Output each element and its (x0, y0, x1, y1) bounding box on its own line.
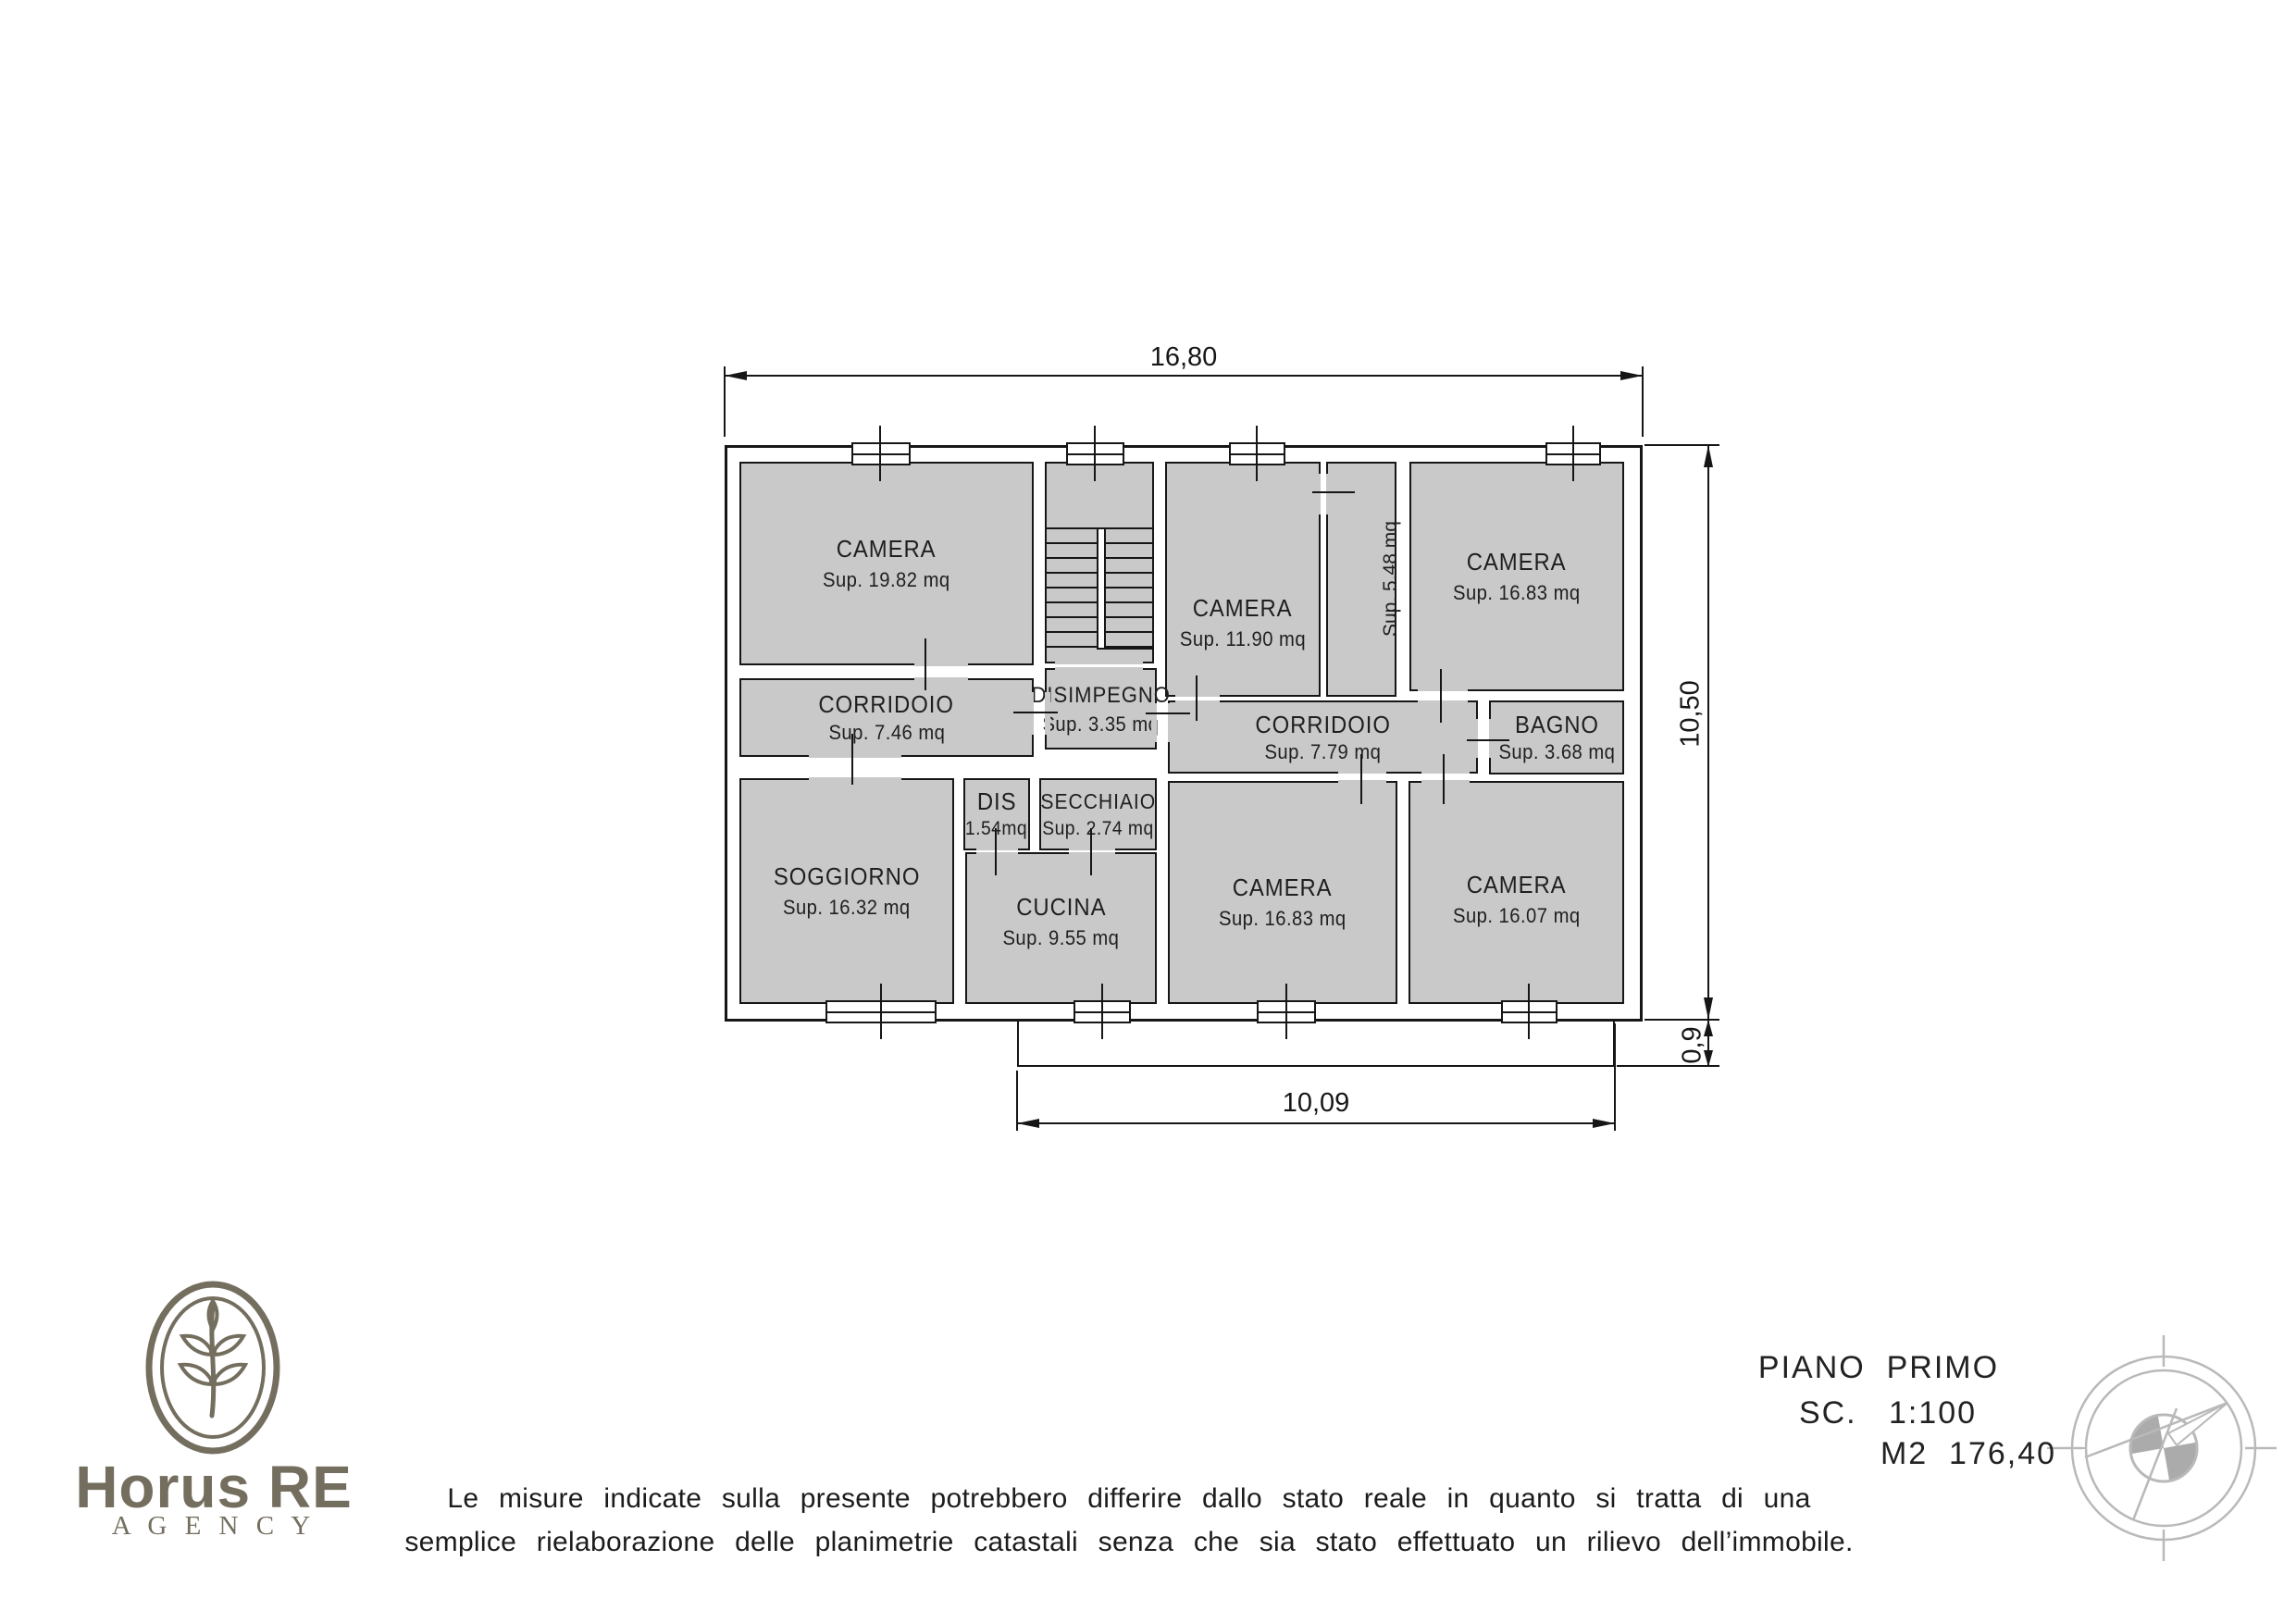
scale-label: SC. 1:100 (1740, 1395, 2036, 1431)
room-area: Sup. 3.35 mq (1043, 712, 1160, 737)
room-area: Sup. 5.48 mq (1379, 464, 1403, 695)
room-area: Sup. 16.83 mq (1453, 580, 1581, 605)
door-tick (995, 828, 997, 875)
door-opening (914, 677, 968, 683)
stair-treads-right (1106, 529, 1152, 648)
dim-value-top: 16,80 (1110, 342, 1258, 373)
dim-value-right: 10,50 (1676, 640, 1706, 788)
door-opening (1151, 703, 1157, 742)
room-area: Sup. 3.68 mq (1498, 739, 1615, 764)
door-tick (1312, 491, 1355, 493)
door-opening (1175, 691, 1220, 697)
room-corridoio-7-46: CORRIDOIO Sup. 7.46 mq (739, 678, 1034, 757)
door-opening (1418, 686, 1468, 691)
door-opening (1489, 719, 1495, 758)
room-bagno-5-48: BAGNO Sup. 5.48 mq (1326, 462, 1396, 697)
room-label: CAMERA (1233, 873, 1333, 901)
door-tick (851, 734, 853, 785)
room-camera-19-82: CAMERA Sup. 19.82 mq (739, 462, 1034, 665)
room-area: Sup. 16.83 mq (1219, 906, 1347, 931)
window-symbol (851, 442, 911, 465)
room-secchiaio: SECCHIAIO Sup. 2.74 mq (1039, 778, 1157, 850)
door-opening (809, 752, 901, 758)
room-camera-16-83-top: CAMERA Sup. 16.83 mq (1409, 462, 1624, 691)
room-camera-16-07: CAMERA Sup. 16.07 mq (1409, 781, 1624, 1004)
door-opening (1028, 692, 1034, 735)
door-opening (1315, 474, 1321, 514)
door-tick (1090, 828, 1092, 875)
stair-divider (1097, 529, 1106, 650)
door-tick (1196, 675, 1198, 721)
door-opening (1055, 667, 1143, 672)
room-area: Sup. 2.74 mq (1042, 816, 1153, 841)
window-tick (1101, 984, 1103, 1039)
room-area: Sup. 7.79 mq (1265, 739, 1382, 764)
room-label: CAMERA (1467, 871, 1567, 898)
room-area: Sup. 16.32 mq (783, 895, 911, 920)
door-tick (925, 638, 926, 690)
room-label: DIS (977, 787, 1017, 815)
disclaimer-text: Le misure indicate sulla presente potreb… (296, 1477, 1962, 1564)
stair-treads-left (1047, 529, 1097, 648)
room-label: CUCINA (1016, 893, 1106, 921)
room-label: CORRIDOIO (1255, 711, 1390, 738)
dim-value-balcony: 0,9 (1678, 972, 1708, 1120)
door-opening (1472, 719, 1478, 758)
room-camera-11-90: CAMERA Sup. 11.90 mq (1165, 462, 1321, 697)
door-opening (1055, 660, 1143, 664)
door-opening (976, 852, 1018, 858)
window-tick (1094, 426, 1096, 481)
door-opening (1338, 780, 1386, 786)
window-tick (1285, 984, 1287, 1039)
dim-arrow (1704, 445, 1713, 467)
dim-line-right (1707, 445, 1709, 1020)
door-tick (1360, 754, 1362, 804)
window-tick (880, 984, 882, 1039)
door-opening (1338, 768, 1386, 774)
room-label: CORRIDOIO (819, 690, 954, 718)
room-camera-16-83-bottom: CAMERA Sup. 16.83 mq (1168, 781, 1397, 1004)
room-label: CAMERA (837, 535, 937, 563)
logo-emblem-icon (139, 1275, 287, 1460)
room-label: BAGNO (1514, 711, 1598, 738)
room-label: DISIMPEGNO (1031, 682, 1170, 710)
room-area: Sup. 19.82 mq (823, 567, 950, 592)
room-area: Sup. 7.46 mq (828, 720, 945, 745)
window-tick (1572, 426, 1574, 481)
dim-arrow (1593, 1119, 1615, 1128)
window-tick (1528, 984, 1530, 1039)
door-opening (1326, 474, 1332, 514)
door-tick (1013, 712, 1058, 713)
door-opening (1421, 768, 1470, 774)
door-tick (1440, 669, 1442, 723)
floor-plan-sheet: CAMERA Sup. 19.82 mq CAMERA Sup. 11.90 m… (0, 0, 2296, 1623)
room-dis: DIS 1.54mq (963, 778, 1030, 850)
door-opening (1418, 700, 1468, 706)
dim-value-bottom: 10,09 (1242, 1088, 1390, 1119)
room-label: SOGGIORNO (774, 862, 920, 890)
door-opening (1069, 845, 1115, 850)
room-bagno-3-68: BAGNO Sup. 3.68 mq (1489, 700, 1624, 774)
total-area-label: M2 176,40 (1820, 1436, 2116, 1472)
room-area: 1.54mq (965, 816, 1027, 841)
stair-turn-line (1097, 648, 1154, 650)
dim-line-top (725, 375, 1643, 377)
room-area: Sup. 16.07 mq (1453, 903, 1581, 928)
door-tick (1443, 754, 1445, 804)
window-tick (1256, 426, 1258, 481)
disclaimer-line-2: semplice rielaborazione delle planimetri… (296, 1520, 1962, 1564)
door-opening (1421, 780, 1470, 786)
room-soggiorno: SOGGIORNO Sup. 16.32 mq (739, 778, 954, 1004)
balcony-outline (1017, 1020, 1615, 1067)
door-opening (1168, 703, 1173, 742)
dim-arrow (725, 371, 747, 380)
door-tick (1467, 739, 1509, 741)
room-area: Sup. 9.55 mq (1003, 925, 1120, 950)
disclaimer-line-1: Le misure indicate sulla presente potreb… (296, 1477, 1962, 1520)
room-area: Sup. 11.90 mq (1180, 626, 1306, 651)
dim-arrow (1017, 1119, 1039, 1128)
room-label: CAMERA (1467, 548, 1567, 576)
agency-logo (139, 1275, 287, 1460)
door-opening (1045, 692, 1050, 735)
floor-title: PIANO PRIMO (1731, 1350, 2027, 1386)
dim-arrow (1620, 371, 1643, 380)
door-opening (1069, 852, 1115, 858)
room-label: SECCHIAIO (1040, 787, 1156, 815)
window-tick (879, 426, 881, 481)
door-opening (809, 777, 901, 783)
door-tick (1146, 712, 1190, 714)
dim-line-bottom (1017, 1122, 1615, 1124)
room-disimpegno: DISIMPEGNO Sup. 3.35 mq (1045, 668, 1157, 750)
room-label: CAMERA (1193, 594, 1293, 622)
door-opening (976, 845, 1018, 850)
door-opening (914, 661, 968, 666)
room-corridoio-7-79: CORRIDOIO Sup. 7.79 mq (1168, 700, 1478, 774)
door-opening (1175, 700, 1220, 706)
